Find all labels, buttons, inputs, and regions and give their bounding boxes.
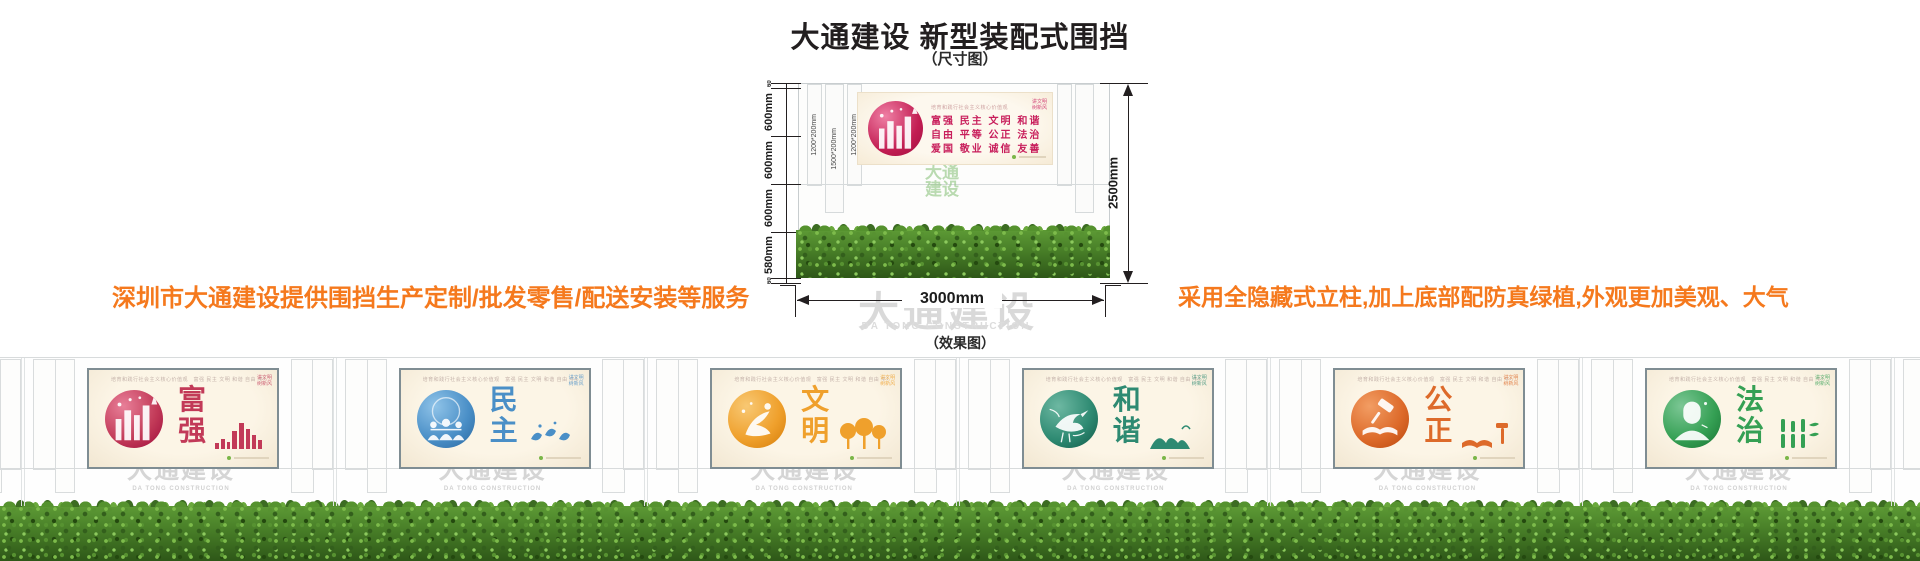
fence-slat: [1279, 359, 1303, 470]
fence-watermark-en: DA TONG CONSTRUCTION: [1669, 486, 1809, 492]
fence-slat: [1301, 359, 1321, 493]
panel-word: 法治: [1733, 384, 1767, 446]
fence-slat: [1613, 359, 1633, 493]
display-panel: 培育和践行社会主义核心价值观 富强 民主 文明 和谐 自由 平等 公正 法治 爱…: [710, 368, 902, 469]
panel-slogan-header: 培育和践行社会主义核心价值观 富强 民主 文明 和谐 自由 平等 公正 法治 爱…: [111, 376, 265, 383]
fence-slat: [1558, 359, 1579, 470]
post-strip: 1200*200mm: [807, 84, 822, 186]
judge-art-icon: [1663, 390, 1721, 448]
city-art-icon: [105, 390, 163, 448]
sign-artwork-circle: [868, 101, 923, 156]
fence-seam-line: [1582, 358, 1583, 506]
fence-slat: [55, 359, 75, 493]
panel-corner-slogan: 讲文明 树新风: [569, 375, 584, 387]
people-art-icon: [417, 390, 475, 448]
width-dim-line: [999, 300, 1104, 301]
fence-watermark-en: DA TONG CONSTRUCTION: [1357, 486, 1497, 492]
feature-note: 采用全隐藏式立柱,加上底部配防真绿植,外观更加美观、大气: [1178, 278, 1789, 312]
display-panel: 培育和践行社会主义核心价值观 富强 民主 文明 和谐 自由 平等 公正 法治 爱…: [399, 368, 591, 469]
effect-figure-label: （效果图）: [0, 333, 1920, 353]
fence-slat: [291, 359, 314, 493]
dim-label-60-top: 60: [763, 79, 777, 88]
fence-seam-line: [21, 358, 22, 506]
panel-corner-line2: 树新风: [569, 381, 584, 387]
fence-slat: [1225, 359, 1248, 493]
panel-side-icon: [525, 417, 577, 451]
panel-corner-line2: 树新风: [1503, 381, 1518, 387]
city-art-icon: [868, 101, 923, 156]
board-watermark: 大通建设: [925, 164, 965, 198]
post-strip: [1057, 84, 1072, 186]
fence-watermark-en: DA TONG CONSTRUCTION: [1046, 486, 1186, 492]
eco-dot-icon: [1785, 456, 1789, 460]
fence-seam-line: [644, 358, 645, 506]
dim-label-600: 600mm: [760, 184, 778, 232]
fence-slat: [602, 359, 625, 493]
panel-artwork-circle: [728, 390, 786, 448]
dim-label-600: 600mm: [760, 136, 778, 184]
fence-slat: [935, 359, 956, 470]
sign-slogan-header: 培育和践行社会主义核心价值观: [931, 104, 1008, 111]
dim-label-60-bottom: 60: [763, 276, 777, 285]
fence-seam-line: [1894, 358, 1895, 506]
sign-corner-slogan: 讲文明树新风: [1032, 99, 1047, 111]
fence-seam-line: [336, 358, 337, 506]
mountains-icon: [1148, 417, 1200, 451]
eco-dot-icon: [227, 456, 231, 460]
dim-bracket: [780, 285, 796, 286]
fence-section: 大通建设DA TONG CONSTRUCTION 培育和践行社会主义核心价值观 …: [0, 357, 1920, 561]
arrow-right-icon: [1092, 295, 1104, 305]
display-panel: 培育和践行社会主义核心价值观 富强 民主 文明 和谐 自由 平等 公正 法治 爱…: [1333, 368, 1525, 469]
dim-label-600: 600mm: [760, 88, 778, 136]
panel-word: 民主: [487, 384, 521, 446]
values-row: 富强 民主 文明 和谐: [931, 112, 1041, 127]
panel-corner-slogan: 讲文明 树新风: [1503, 375, 1518, 387]
service-note: 深圳市大通建设提供围挡生产定制/批发零售/配送安装等服务: [112, 278, 749, 313]
panel-footnote: [546, 457, 581, 459]
diagram-hedge: [796, 230, 1110, 278]
values-row: 自由 平等 公正 法治: [931, 126, 1041, 141]
panel-footnote: [1792, 457, 1827, 459]
fence-slat: [1849, 359, 1872, 493]
fence-slat: [1246, 359, 1267, 470]
fence-watermark-en: DA TONG CONSTRUCTION: [734, 486, 874, 492]
left-dim-line: [786, 83, 787, 283]
fence-slat: [33, 359, 57, 470]
fence-slat: [1870, 359, 1891, 470]
panel-corner-slogan: 讲文明 树新风: [1192, 375, 1207, 387]
panel-artwork-circle: [1040, 390, 1098, 448]
panel-footnote: [1480, 457, 1515, 459]
arrow-up-icon: [1123, 84, 1133, 96]
panel-slogan-header: 培育和践行社会主义核心价值观 富强 民主 文明 和谐 自由 平等 公正 法治 爱…: [734, 376, 888, 383]
book-gavel-icon: [1459, 417, 1511, 451]
panel-corner-line2: 树新风: [1815, 381, 1830, 387]
panel-side-icon: [1771, 417, 1823, 451]
fence-slat: [656, 359, 680, 470]
fence-seam-line: [1270, 358, 1271, 506]
total-width-label: 3000mm: [902, 290, 1002, 308]
dim-tick: [1100, 283, 1148, 284]
eco-dot-icon: [1012, 155, 1016, 159]
panel-word: 文明: [798, 384, 832, 446]
post-strip: [1075, 84, 1094, 213]
dimension-figure-label: （尺寸图）: [0, 48, 1920, 69]
panel-corner-slogan: 讲文明 树新风: [880, 375, 895, 387]
crane-art-icon: [1040, 390, 1098, 448]
panel-footnote: [857, 457, 892, 459]
panel-artwork-circle: [1351, 390, 1409, 448]
panel-artwork-circle: [417, 390, 475, 448]
sign-footnote: [1019, 156, 1046, 158]
panel-slogan-header: 培育和践行社会主义核心价值观 富强 民主 文明 和谐 自由 平等 公正 法治 爱…: [1669, 376, 1823, 383]
fence-slat: [678, 359, 698, 493]
eco-dot-icon: [850, 456, 854, 460]
trees-icon: [836, 417, 888, 451]
fence-slat: [1903, 359, 1920, 470]
panel-artwork-circle: [105, 390, 163, 448]
post-strip: 1500*200mm: [825, 84, 844, 213]
height-dim-line: [1128, 86, 1129, 280]
fence-seam-line: [24, 358, 25, 506]
panel-corner-line2: 树新风: [257, 381, 272, 387]
fence-slat: [1537, 359, 1560, 493]
panel-corner-slogan: 讲文明 树新风: [1815, 375, 1830, 387]
brand-watermark-en: DA TONG CONSTRUCTION: [858, 321, 1034, 332]
panel-corner-line2: 树新风: [1192, 381, 1207, 387]
dim-bracket: [1105, 285, 1106, 317]
fence-seam-line: [1891, 358, 1892, 506]
dim-bracket: [1105, 285, 1121, 286]
panel-side-icon: [1459, 417, 1511, 451]
panel-slogan-header: 培育和践行社会主义核心价值观 富强 民主 文明 和谐 自由 平等 公正 法治 爱…: [1046, 376, 1200, 383]
panel-word: 富强: [175, 384, 209, 446]
fence-slat: [914, 359, 937, 493]
arrow-down-icon: [1123, 271, 1133, 283]
doves-icon: [525, 417, 577, 451]
panel-slogan-header: 培育和践行社会主义核心价值观 富强 民主 文明 和谐 自由 平等 公正 法治 爱…: [1357, 376, 1511, 383]
post-size-label: 1500*200mm: [831, 128, 838, 170]
post-size-label: 1200*200mm: [811, 114, 818, 156]
panel-footnote: [234, 457, 269, 459]
fence-watermark-en: DA TONG CONSTRUCTION: [423, 486, 563, 492]
fence-slat: [968, 359, 992, 470]
dim-bracket: [795, 285, 796, 317]
panel-corner-line2: 树新风: [880, 381, 895, 387]
fence-slat: [367, 359, 387, 493]
arrow-left-icon: [797, 295, 809, 305]
fence-seam-line: [956, 358, 957, 506]
panel-side-icon: [1148, 417, 1200, 451]
bamboo-icon: [1771, 417, 1823, 451]
fence-seam-line: [1267, 358, 1268, 506]
values-sign: 培育和践行社会主义核心价值观 富强 民主 文明 和谐 自由 平等 公正 法治 爱…: [857, 92, 1053, 165]
values-row: 爱国 敬业 诚信 友善: [931, 140, 1041, 155]
eco-dot-icon: [1162, 456, 1166, 460]
fence-seam-line: [333, 358, 334, 506]
panel-side-icon: [213, 417, 265, 451]
fence-slat: [0, 359, 21, 470]
fence-slat: [312, 359, 333, 470]
fence-seam-line: [959, 358, 960, 506]
eco-dot-icon: [1473, 456, 1477, 460]
panel-corner-slogan: 讲文明 树新风: [257, 375, 272, 387]
eco-dot-icon: [539, 456, 543, 460]
fence-watermark-en: DA TONG CONSTRUCTION: [111, 486, 251, 492]
dim-label-580: 580mm: [760, 232, 778, 278]
fence-hedge: [0, 506, 1920, 561]
width-dim-line: [797, 300, 903, 301]
fence-slat: [990, 359, 1010, 493]
dancer-art-icon: [728, 390, 786, 448]
display-panel: 培育和践行社会主义核心价值观 富强 民主 文明 和谐 自由 平等 公正 法治 爱…: [87, 368, 279, 469]
fence-seam-line: [647, 358, 648, 506]
fence-slat: [345, 359, 369, 470]
panel-artwork-circle: [1663, 390, 1721, 448]
fence-slat: [1591, 359, 1615, 470]
display-panel: 培育和践行社会主义核心价值观 富强 民主 文明 和谐 自由 平等 公正 法治 爱…: [1022, 368, 1214, 469]
panel-slogan-header: 培育和践行社会主义核心价值观 富强 民主 文明 和谐 自由 平等 公正 法治 爱…: [423, 376, 577, 383]
fence-slat: [623, 359, 644, 470]
panel-word: 和谐: [1110, 384, 1144, 446]
panel-word: 公正: [1421, 384, 1455, 446]
display-panel: 培育和践行社会主义核心价值观 富强 民主 文明 和谐 自由 平等 公正 法治 爱…: [1645, 368, 1837, 469]
gavel-art-icon: [1351, 390, 1409, 448]
panel-side-icon: [836, 417, 888, 451]
panel-footnote: [1169, 457, 1204, 459]
fence-joint-line: [0, 468, 1920, 469]
skyline-icon: [213, 417, 265, 451]
fence-seam-line: [1579, 358, 1580, 506]
